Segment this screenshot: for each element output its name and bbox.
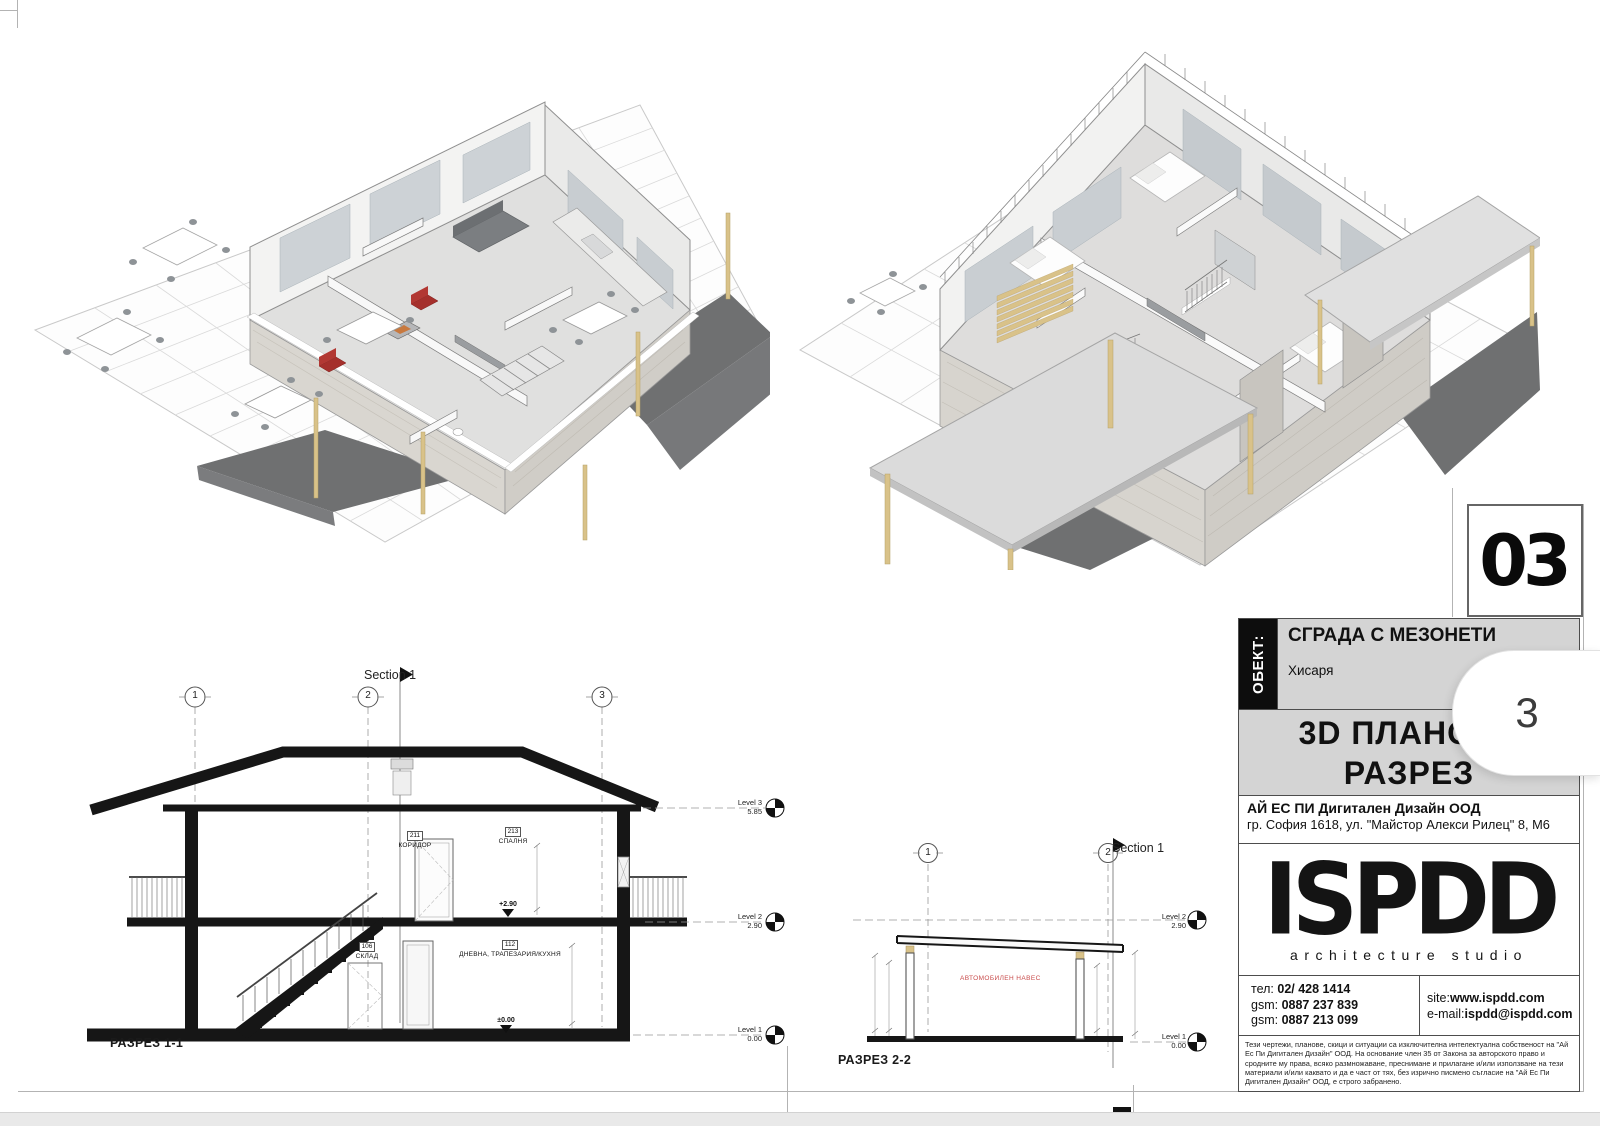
upper-floor-3d-svg [785, 50, 1540, 570]
email-label: e-mail: [1427, 1007, 1465, 1021]
project-name: СГРАДА С МЕЗОНЕТИ [1288, 625, 1569, 647]
drawing-title-line2: РАЗРЕЗ [1344, 753, 1474, 793]
page-number: 3 [1515, 689, 1538, 737]
web-column: site:www.ispdd.com e-mail:ispdd@ispdd.co… [1419, 976, 1579, 1035]
level-marker-icon [766, 799, 784, 817]
phone-column: тел: 02/ 428 1414 gsm: 0887 237 839 gsm:… [1239, 976, 1419, 1035]
email-address: ispdd@ispdd.com [1465, 1007, 1573, 1021]
phone-label: тел: [1251, 982, 1274, 996]
room-label-spalnya: 213СПАЛНЯ [463, 827, 563, 846]
grid-bubble-1: 1 [185, 690, 205, 701]
room-label-sklad: 106СКЛАД [317, 942, 417, 961]
dimension-lines [537, 845, 572, 1029]
sheet-divider-vertical-left [787, 1046, 788, 1112]
chimney-flue [393, 771, 411, 795]
level-marker-icon [1188, 911, 1206, 929]
level-1-label: Level 10.00 [1130, 1033, 1186, 1050]
sheet-divider-vertical-right [1133, 1085, 1134, 1112]
sheet-border-right [1583, 504, 1584, 1092]
upper-floor-3d-view [785, 50, 1540, 570]
site-url: www.ispdd.com [1450, 991, 1545, 1005]
site-label: site: [1427, 991, 1450, 1005]
gsm2-label: gsm: [1251, 1013, 1278, 1027]
ispdd-logo: ISPDD [1264, 853, 1555, 946]
ground-floor-3d-view [25, 80, 770, 575]
spot-elevation-290: +2.90 [483, 901, 533, 908]
right-wall [617, 811, 630, 1033]
grid-lines [179, 687, 618, 1027]
drawing-sheet: Section 1 1 2 3 Level 35.85 Level 22.90 … [0, 0, 1600, 1126]
structure [87, 752, 657, 1035]
phone-number: 02/ 428 1414 [1277, 982, 1350, 996]
right-balcony [630, 877, 687, 922]
grid-bubble-2: 2 [1098, 847, 1118, 858]
stairs [235, 893, 383, 1039]
company-cell: АЙ ЕС ПИ Дигитален Дизайн ООД гр. София … [1238, 795, 1580, 844]
page-number-badge: 3 [1452, 650, 1600, 776]
left-balcony [127, 877, 185, 922]
gsm2-number: 0887 213 099 [1282, 1013, 1358, 1027]
legal-text-cell: Тези чертежи, планове, скици и ситуации … [1238, 1035, 1580, 1092]
level-1-label: Level 10.00 [706, 1026, 762, 1043]
sheet-number: 03 [1479, 520, 1570, 602]
logo-cell: ISPDD architecture studio [1238, 843, 1580, 976]
level-marker-icon [766, 1026, 784, 1044]
chimney [391, 759, 413, 769]
section-1-1-caption: РАЗРЕЗ 1-1 [110, 1036, 183, 1050]
room-label-dnevna: 112ДНЕВНА, ТРАПЕЗАРИЯ/КУХНЯ [410, 940, 610, 959]
bathroom-fixture [453, 429, 463, 436]
grid-bubble-2: 2 [358, 690, 378, 701]
object-label: ОБЕКТ: [1250, 635, 1267, 694]
level-marker-icon [1188, 1033, 1206, 1051]
section-1-1-drawing [85, 645, 825, 1055]
roof-outline [91, 752, 657, 810]
room-label-koridor: 211КОРИДОР [365, 831, 465, 850]
company-address: гр. София 1618, ул. "Майстор Алекси Риле… [1247, 817, 1571, 832]
level-3-label: Level 35.85 [706, 799, 762, 816]
gsm1-label: gsm: [1251, 998, 1278, 1012]
gsm1-number: 0887 237 839 [1282, 998, 1358, 1012]
company-name: АЙ ЕС ПИ Дигитален Дизайн ООД [1247, 800, 1571, 816]
section-2-2-section-label: Section 1 [1112, 841, 1164, 855]
section-cut-line [1113, 838, 1125, 1068]
viewer-bottom-strip [0, 1112, 1600, 1126]
object-label-cell: ОБЕКТ: [1238, 618, 1278, 710]
carport-red-annotation: АВТОМОБИЛЕН НАВЕС [960, 975, 1041, 982]
posts [906, 946, 1084, 1039]
level-marker-icon [766, 913, 784, 931]
sheet-number-box: 03 [1467, 504, 1583, 617]
spot-elevation-arrow [502, 909, 514, 917]
grid-bubble-3: 3 [592, 690, 612, 701]
legal-text: Тези чертежи, планове, скици и ситуации … [1245, 1040, 1568, 1086]
grid-bubble-1: 1 [918, 847, 938, 858]
left-wall [185, 811, 198, 1033]
level-2-label: Level 22.90 [1130, 913, 1186, 930]
section-1-1-section-label: Section 1 [364, 668, 416, 682]
section-2-2-caption: РАЗРЕЗ 2-2 [838, 1053, 911, 1067]
spot-elevation-000: ±0.00 [481, 1017, 531, 1024]
level-2-label: Level 22.90 [706, 913, 762, 930]
contacts-cell: тел: 02/ 428 1414 gsm: 0887 237 839 gsm:… [1238, 975, 1580, 1036]
ground-floor-3d-svg [25, 80, 770, 575]
sheet-border-corner-v [17, 0, 18, 28]
sheet-border-corner-h [0, 10, 18, 11]
